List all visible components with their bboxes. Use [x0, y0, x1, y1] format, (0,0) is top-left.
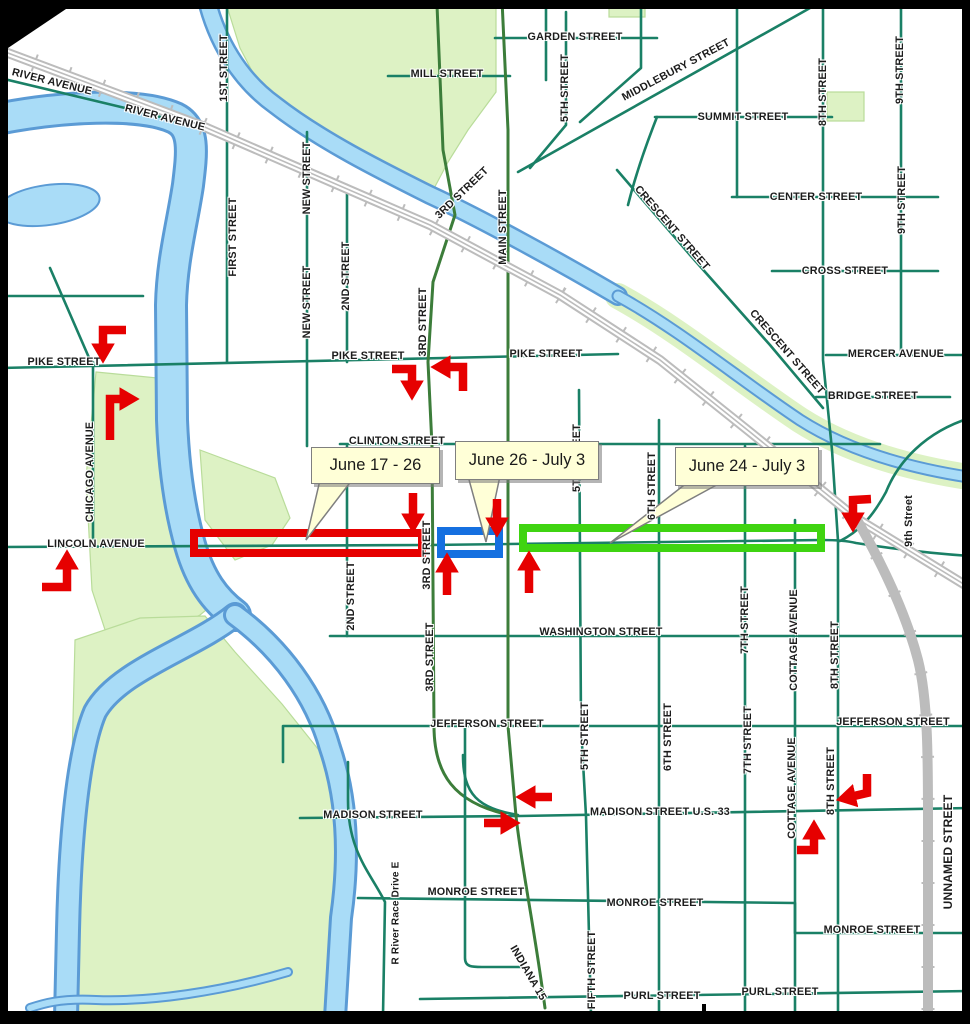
map-canvas: [0, 0, 970, 1024]
callout-date-1: June 17 - 26: [311, 447, 440, 484]
callout-date-3: June 24 - July 3: [675, 447, 819, 486]
callout-date-2: June 26 - July 3: [455, 441, 599, 480]
detour-map: RIVER AVENUERIVER AVENUE1ST STREETFIRST …: [0, 0, 970, 1024]
